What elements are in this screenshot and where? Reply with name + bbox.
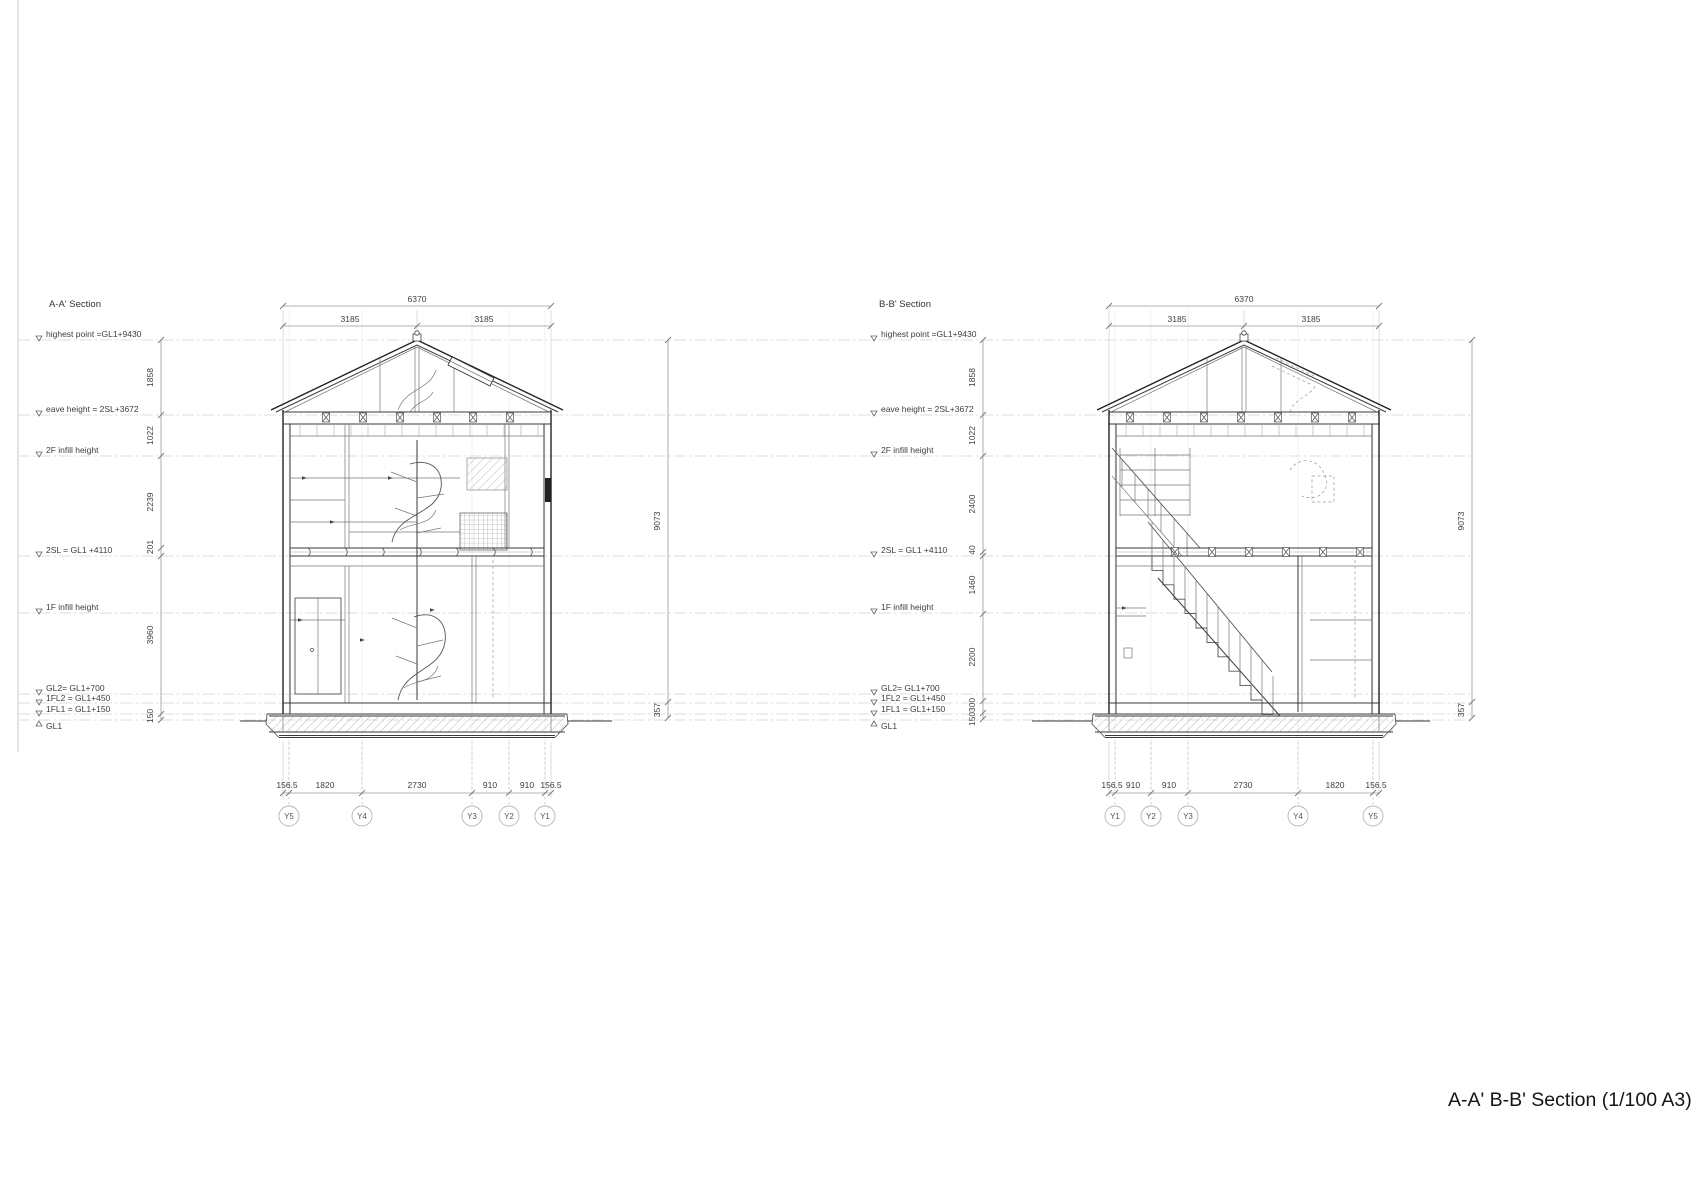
dim: 2730	[408, 780, 427, 790]
dim: 910	[520, 780, 534, 790]
svg-text:Y2: Y2	[1146, 812, 1156, 821]
svg-text:Y3: Y3	[1183, 812, 1193, 821]
grid-bubble: Y2	[499, 806, 519, 826]
svg-text:Y5: Y5	[284, 812, 294, 821]
level-label: 1FL1 = GL1+150	[881, 704, 946, 714]
section-a-left-dims: 1858 1022 2239 201 3960 150	[145, 337, 164, 723]
grid-bubble: Y3	[462, 806, 482, 826]
section-a-bottom-dims: 156.5 1820 2730 910 910 156.5 Y5 Y4 Y3 Y…	[276, 742, 562, 826]
section-a-right-dims: 9073 357	[652, 337, 671, 721]
eave-plate	[1109, 412, 1379, 424]
dim: 2400	[967, 494, 977, 513]
dim: 910	[483, 780, 497, 790]
roof	[271, 331, 563, 412]
sheet-title: A-A' B-B' Section (1/100 A3)	[1448, 1089, 1680, 1112]
level-label: GL1	[46, 721, 62, 731]
level-label: 2F infill height	[46, 445, 99, 455]
dim: 3960	[145, 625, 155, 644]
fixture	[1124, 648, 1132, 658]
section-a: A-A' Section highest point =GL1+9430 eav…	[36, 294, 671, 826]
eave-plate	[283, 412, 551, 424]
level-label: 1FL2 = GL1+450	[881, 693, 946, 703]
dim: 201	[145, 540, 155, 554]
level-label: GL2= GL1+700	[46, 683, 105, 693]
shelf-unit	[1120, 448, 1190, 516]
dim: 1858	[145, 368, 155, 387]
level-label: eave height = 2SL+3672	[881, 404, 974, 414]
grid-bubble: Y5	[1363, 806, 1383, 826]
dim: 40	[967, 545, 977, 555]
grid-bubble: Y1	[535, 806, 555, 826]
dim: 357	[1456, 703, 1466, 717]
level-label: 2SL = GL1 +4110	[881, 545, 947, 555]
dim: 3185	[1302, 314, 1321, 324]
svg-text:Y2: Y2	[504, 812, 514, 821]
svg-text:Y4: Y4	[1293, 812, 1303, 821]
dim: 910	[1126, 780, 1140, 790]
dim: 1022	[967, 426, 977, 445]
section-b-left-dims: 1858 1022 2400 40 1460 2200 300 150	[967, 337, 986, 726]
mesh-panel	[460, 513, 507, 550]
foundation	[240, 703, 612, 738]
grid-bubble: Y1	[1105, 806, 1125, 826]
dim: 156.5	[276, 780, 298, 790]
spiral-stair	[391, 440, 445, 700]
dim: 3185	[1168, 314, 1187, 324]
svg-text:Y5: Y5	[1368, 812, 1378, 821]
grid-bubble: Y5	[279, 806, 299, 826]
dim: 2730	[1234, 780, 1253, 790]
grid-bubble: Y4	[1288, 806, 1308, 826]
level-label: GL2= GL1+700	[881, 683, 940, 693]
dim: 9073	[652, 511, 662, 530]
svg-text:Y1: Y1	[540, 812, 550, 821]
dim: 1460	[967, 575, 977, 594]
svg-text:Y1: Y1	[1110, 812, 1120, 821]
dim: 156.5	[1365, 780, 1387, 790]
level-label: 1FL1 = GL1+150	[46, 704, 111, 714]
grid-bubble: Y2	[1141, 806, 1161, 826]
section-b-title: B-B' Section	[879, 299, 931, 310]
dim: 300	[967, 698, 977, 712]
dim: 156.5	[540, 780, 562, 790]
upper-stair-rail	[1112, 448, 1200, 556]
door	[295, 598, 341, 694]
level-label: 1F infill height	[881, 602, 934, 612]
section-b: B-B' Section highest point =GL1+9430 eav…	[871, 294, 1475, 826]
level-label: 2F infill height	[881, 445, 934, 455]
dim: 2239	[145, 492, 155, 511]
dim: 6370	[408, 294, 427, 304]
dashed-detail	[1312, 476, 1334, 502]
dim: 1820	[1326, 780, 1345, 790]
hatched-panel	[467, 458, 507, 490]
dim: 6370	[1235, 294, 1254, 304]
level-label: 1F infill height	[46, 602, 99, 612]
section-b-level-labels: highest point =GL1+9430 eave height = 2S…	[871, 329, 977, 731]
dim: 1858	[967, 368, 977, 387]
dim: 357	[652, 703, 662, 717]
dim: 156.5	[1101, 780, 1123, 790]
dim: 3185	[475, 314, 494, 324]
level-label: GL1	[881, 721, 897, 731]
svg-text:Y4: Y4	[357, 812, 367, 821]
section-b-right-dims: 9073 357	[1456, 337, 1475, 721]
dim: 1820	[316, 780, 335, 790]
dim: 1022	[145, 426, 155, 445]
level-label: eave height = 2SL+3672	[46, 404, 139, 414]
section-b-building	[1032, 331, 1430, 738]
level-label: 2SL = GL1 +4110	[46, 545, 112, 555]
floor1-interior	[1116, 556, 1372, 712]
dim: 3185	[341, 314, 360, 324]
grid-bubble: Y4	[352, 806, 372, 826]
dim: 9073	[1456, 511, 1466, 530]
section-a-title: A-A' Section	[49, 299, 101, 310]
roof	[1097, 331, 1391, 412]
section-b-bottom-dims: 156.5 910 910 2730 1820 156.5 Y1 Y2 Y3 Y…	[1101, 742, 1387, 826]
level-label: highest point =GL1+9430	[46, 329, 142, 339]
svg-text:Y3: Y3	[467, 812, 477, 821]
section-drawings-canvas: A-A' Section highest point =GL1+9430 eav…	[0, 0, 1700, 1202]
level-datum-lines	[18, 340, 1472, 720]
dim: 2200	[967, 647, 977, 666]
section-a-level-labels: highest point =GL1+9430 eave height = 2S…	[36, 329, 142, 731]
drawing-sheet: A-A' Section highest point =GL1+9430 eav…	[0, 0, 1700, 1202]
wall-frame-block	[545, 478, 551, 502]
dim: 150	[145, 709, 155, 723]
dim: 910	[1162, 780, 1176, 790]
floor2-band	[1116, 548, 1372, 557]
grid-bubble: Y3	[1178, 806, 1198, 826]
dim: 150	[967, 712, 977, 726]
level-label: 1FL2 = GL1+450	[46, 693, 111, 703]
section-a-building	[240, 331, 612, 738]
level-label: highest point =GL1+9430	[881, 329, 977, 339]
